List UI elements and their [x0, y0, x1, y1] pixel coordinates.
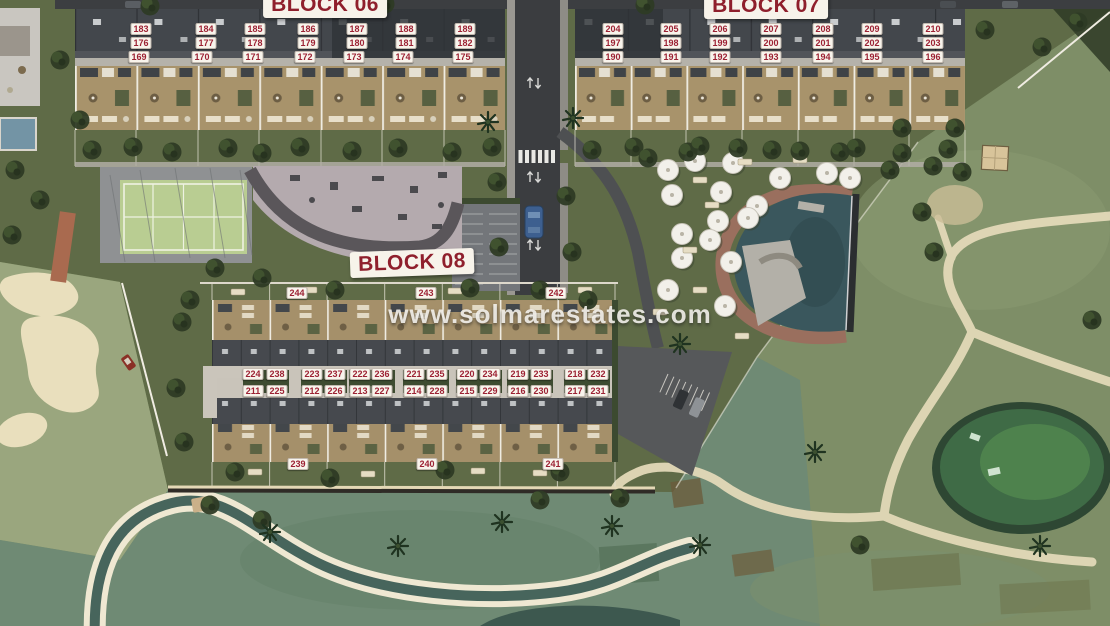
unit-label: 223	[301, 368, 322, 380]
unit-label: 174	[392, 51, 413, 63]
unit-label: 234	[479, 368, 500, 380]
block-label: BLOCK 08	[350, 248, 475, 278]
unit-label: 192	[709, 51, 730, 63]
unit-label: 224	[242, 368, 263, 380]
unit-label: 190	[602, 51, 623, 63]
unit-label: 225	[266, 385, 287, 397]
unit-label: 180	[346, 37, 367, 49]
unit-label: 232	[587, 368, 608, 380]
unit-label: 219	[507, 368, 528, 380]
unit-label: 205	[660, 23, 681, 35]
unit-label: 189	[454, 23, 475, 35]
unit-label: 195	[861, 51, 882, 63]
unit-label: 191	[660, 51, 681, 63]
unit-label: 218	[564, 368, 585, 380]
unit-label: 203	[922, 37, 943, 49]
unit-label: 181	[395, 37, 416, 49]
unit-label: 200	[760, 37, 781, 49]
unit-label: 188	[395, 23, 416, 35]
small-pool	[0, 118, 36, 150]
unit-label: 169	[128, 51, 149, 63]
unit-label: 183	[130, 23, 151, 35]
unit-label: 222	[349, 368, 370, 380]
unit-label: 241	[542, 458, 563, 470]
path-clearing	[927, 185, 983, 225]
unit-label: 239	[287, 458, 308, 470]
golf-hut	[981, 145, 1008, 170]
unit-label: 237	[324, 368, 345, 380]
unit-label: 209	[861, 23, 882, 35]
unit-label: 235	[426, 368, 447, 380]
unit-label: 184	[195, 23, 216, 35]
unit-label: 215	[456, 385, 477, 397]
unit-label: 230	[530, 385, 551, 397]
unit-label: 196	[922, 51, 943, 63]
unit-label: 244	[286, 287, 307, 299]
blue-car	[525, 206, 543, 238]
unit-label: 179	[297, 37, 318, 49]
car	[940, 1, 956, 8]
unit-label: 228	[426, 385, 447, 397]
block-label: BLOCK 06	[263, 0, 387, 18]
site-plan: www.solmarestates.com BLOCK 06BLOCK 07BL…	[0, 0, 1110, 626]
unit-label: 243	[415, 287, 436, 299]
unit-label: 213	[349, 385, 370, 397]
unit-label: 194	[812, 51, 833, 63]
unit-label: 210	[922, 23, 943, 35]
unit-label: 238	[266, 368, 287, 380]
unit-label: 214	[403, 385, 424, 397]
unit-label: 221	[403, 368, 424, 380]
unit-label: 173	[343, 51, 364, 63]
unit-label: 186	[297, 23, 318, 35]
unit-label: 202	[861, 37, 882, 49]
unit-label: 216	[507, 385, 528, 397]
unit-label: 206	[709, 23, 730, 35]
car	[1002, 1, 1018, 8]
golf-pond	[932, 402, 1110, 534]
unit-label: 236	[371, 368, 392, 380]
unit-label: 240	[416, 458, 437, 470]
watermark: www.solmarestates.com	[382, 299, 718, 330]
unit-label: 185	[244, 23, 265, 35]
unit-label: 227	[371, 385, 392, 397]
unit-label: 207	[760, 23, 781, 35]
unit-label: 201	[812, 37, 833, 49]
top-road	[55, 0, 1110, 9]
unit-label: 176	[130, 37, 151, 49]
unit-label: 170	[191, 51, 212, 63]
unit-label: 193	[760, 51, 781, 63]
unit-label: 178	[244, 37, 265, 49]
car	[125, 1, 141, 8]
unit-label: 229	[479, 385, 500, 397]
unit-label: 177	[195, 37, 216, 49]
unit-label: 242	[545, 287, 566, 299]
unit-label: 204	[602, 23, 623, 35]
paddle-court	[100, 167, 252, 263]
unit-label: 217	[564, 385, 585, 397]
unit-label: 212	[301, 385, 322, 397]
unit-label: 172	[294, 51, 315, 63]
unit-label: 197	[602, 37, 623, 49]
unit-label: 220	[456, 368, 477, 380]
block-label: BLOCK 07	[704, 0, 828, 19]
unit-label: 187	[346, 23, 367, 35]
unit-label: 175	[452, 51, 473, 63]
unit-label: 182	[454, 37, 475, 49]
unit-label: 199	[709, 37, 730, 49]
unit-label: 198	[660, 37, 681, 49]
unit-label: 231	[587, 385, 608, 397]
unit-label: 233	[530, 368, 551, 380]
unit-label: 208	[812, 23, 833, 35]
unit-label: 211	[243, 385, 264, 397]
unit-label: 171	[242, 51, 263, 63]
perimeter-wall	[168, 487, 655, 491]
unit-label: 226	[324, 385, 345, 397]
